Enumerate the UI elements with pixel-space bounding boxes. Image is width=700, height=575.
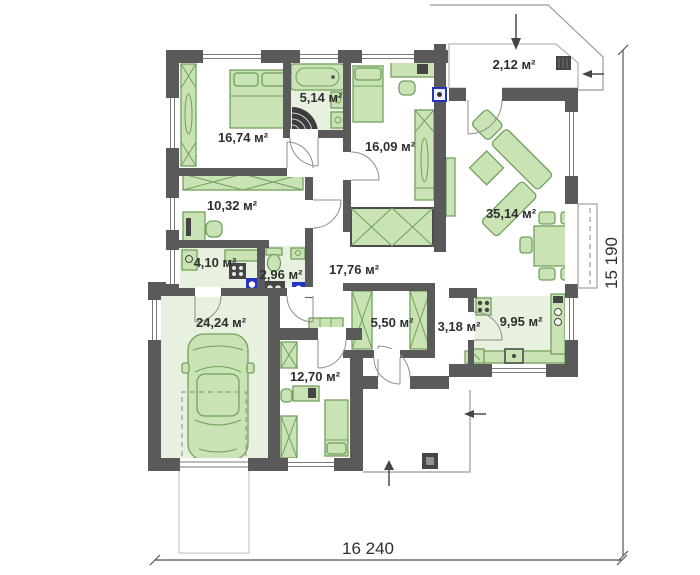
- width-dimension-label: 16 240: [342, 539, 394, 558]
- room-label-entry-hall: 3,18 м²: [438, 319, 482, 334]
- room-label-porch: 2,12 м²: [493, 57, 537, 72]
- car-icon: [182, 334, 254, 460]
- window-icon: [492, 364, 546, 377]
- car-mirror-icon: [182, 363, 189, 373]
- monitor-icon: [308, 388, 316, 398]
- height-dimension: 15 190: [602, 45, 628, 561]
- tv-stand-icon: [446, 158, 455, 216]
- window-icon: [300, 50, 338, 63]
- sofa-icon: [491, 128, 553, 190]
- terrace-up-arrow-icon: [384, 460, 394, 486]
- terrace-column-core: [426, 457, 434, 465]
- floor-plan-canvas: 16,74 м² 5,14 м² 16,09 м² 2,12 м² 35,14 …: [0, 0, 700, 575]
- desk-icon: [391, 62, 435, 77]
- room-label-living: 35,14 м²: [486, 206, 537, 221]
- chair-icon: [399, 81, 415, 95]
- room-label-utility: 4,10 м²: [194, 255, 238, 270]
- room-label-closet: 5,50 м²: [371, 315, 415, 330]
- floor-plan-svg: 16,74 м² 5,14 м² 16,09 м² 2,12 м² 35,14 …: [0, 0, 700, 575]
- window-icon: [565, 298, 578, 340]
- sink-icon: [291, 248, 305, 259]
- window-icon: [362, 50, 414, 63]
- room-label-garage: 24,24 м²: [196, 315, 247, 330]
- room-label-bedroom-2: 16,09 м²: [365, 139, 416, 154]
- chair-icon: [539, 212, 555, 224]
- hall-wardrobe-icon: [183, 174, 303, 190]
- built-in-closet-icon: [351, 208, 433, 246]
- coffee-table-icon: [470, 151, 504, 185]
- wardrobe-icon: [415, 110, 434, 200]
- chair-icon: [539, 268, 555, 280]
- car-mirror-icon: [247, 363, 254, 373]
- room-label-hall: 10,32 м²: [207, 198, 258, 213]
- sink-icon: [331, 112, 345, 128]
- laptop-icon: [417, 64, 428, 74]
- living-room-furniture: [427, 108, 580, 280]
- pillow-icon: [355, 68, 381, 80]
- driveway-outline: [179, 470, 249, 553]
- bedroom-2-furniture: [351, 62, 435, 246]
- room-label-corridor: 17,76 м²: [329, 262, 380, 277]
- wardrobe-icon: [181, 64, 196, 166]
- window-icon: [166, 198, 179, 230]
- hall-furniture: [183, 212, 222, 244]
- window-icon: [166, 250, 179, 284]
- window-icon: [166, 98, 179, 148]
- room-label-kitchen: 9,95 м²: [500, 314, 544, 329]
- porch-side-arrow-icon: [582, 70, 604, 78]
- window-icon: [288, 458, 334, 471]
- terrace-left-arrow-icon: [464, 410, 486, 418]
- window-icon: [565, 112, 578, 176]
- chair-icon: [520, 237, 532, 253]
- pillow-icon: [234, 73, 258, 86]
- sink-icon: [555, 309, 562, 316]
- room-label-bathroom: 5,14 м²: [300, 90, 344, 105]
- room-label-bedroom-3: 12,70 м²: [290, 369, 341, 384]
- chair-icon: [206, 221, 222, 237]
- window-icon: [203, 50, 261, 63]
- door-icon: [287, 287, 313, 322]
- door-icon: [318, 327, 346, 368]
- furniture-layer: [181, 62, 580, 460]
- bay-window-icon: [565, 204, 597, 288]
- pillow-icon: [262, 73, 286, 86]
- door-icon: [304, 200, 341, 228]
- room-label-bedroom-1: 16,74 м²: [218, 130, 269, 145]
- chair-icon: [281, 389, 292, 402]
- room-label-wc: 2,96 м²: [260, 267, 304, 282]
- door-icon: [290, 129, 318, 166]
- door-icon: [351, 152, 379, 180]
- height-dimension-label: 15 190: [602, 237, 621, 289]
- appliance-icon: [553, 296, 563, 303]
- window-icon: [148, 300, 161, 340]
- monitor-icon: [186, 218, 191, 236]
- terrace-outline: [363, 390, 470, 472]
- pillow-icon: [327, 443, 346, 454]
